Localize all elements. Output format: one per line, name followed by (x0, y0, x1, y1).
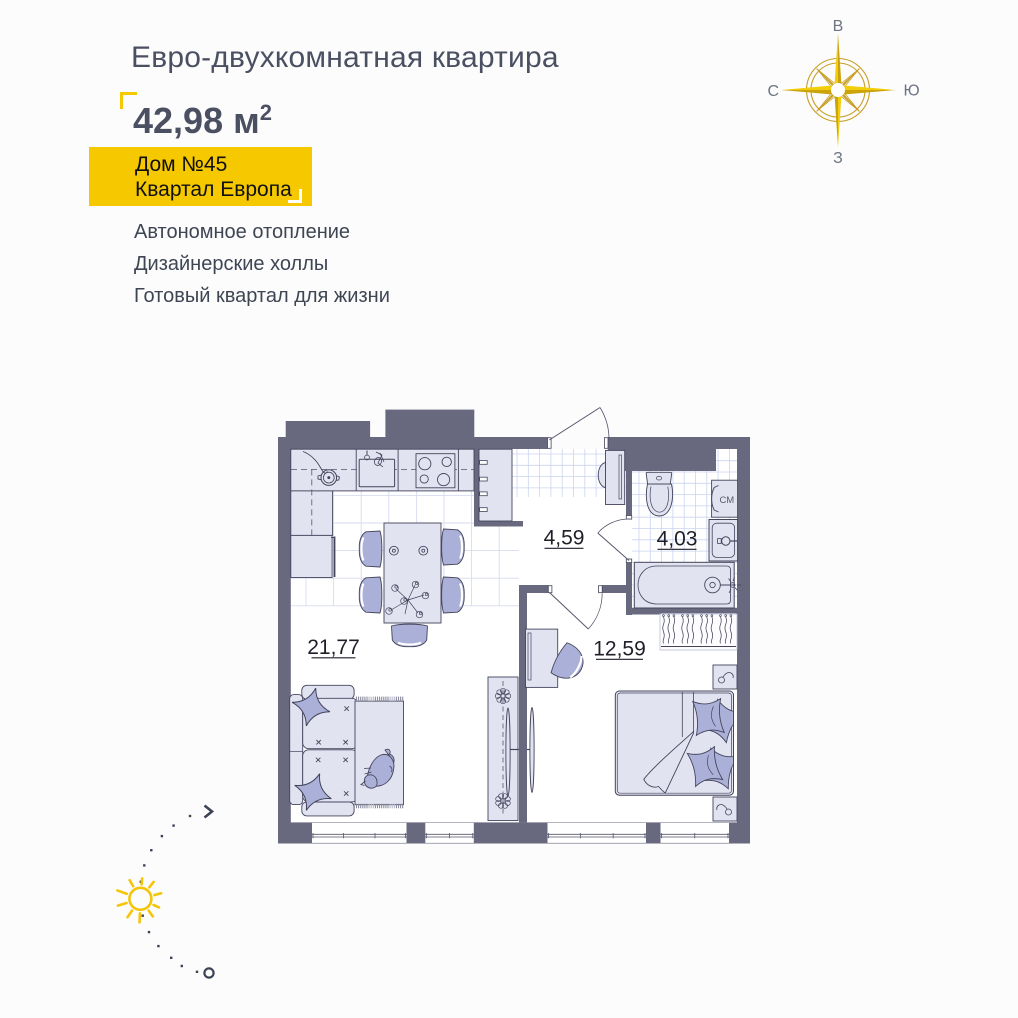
svg-text:В: В (833, 18, 844, 35)
svg-text:Ю: Ю (904, 83, 920, 100)
svg-text:4,03: 4,03 (657, 528, 698, 551)
svg-text:21,77: 21,77 (307, 636, 360, 659)
svg-text:4,59: 4,59 (544, 527, 585, 550)
svg-text:С: С (768, 83, 780, 100)
svg-text:З: З (833, 150, 843, 167)
svg-text:12,59: 12,59 (593, 638, 646, 661)
svg-text:СМ: СМ (720, 495, 735, 506)
